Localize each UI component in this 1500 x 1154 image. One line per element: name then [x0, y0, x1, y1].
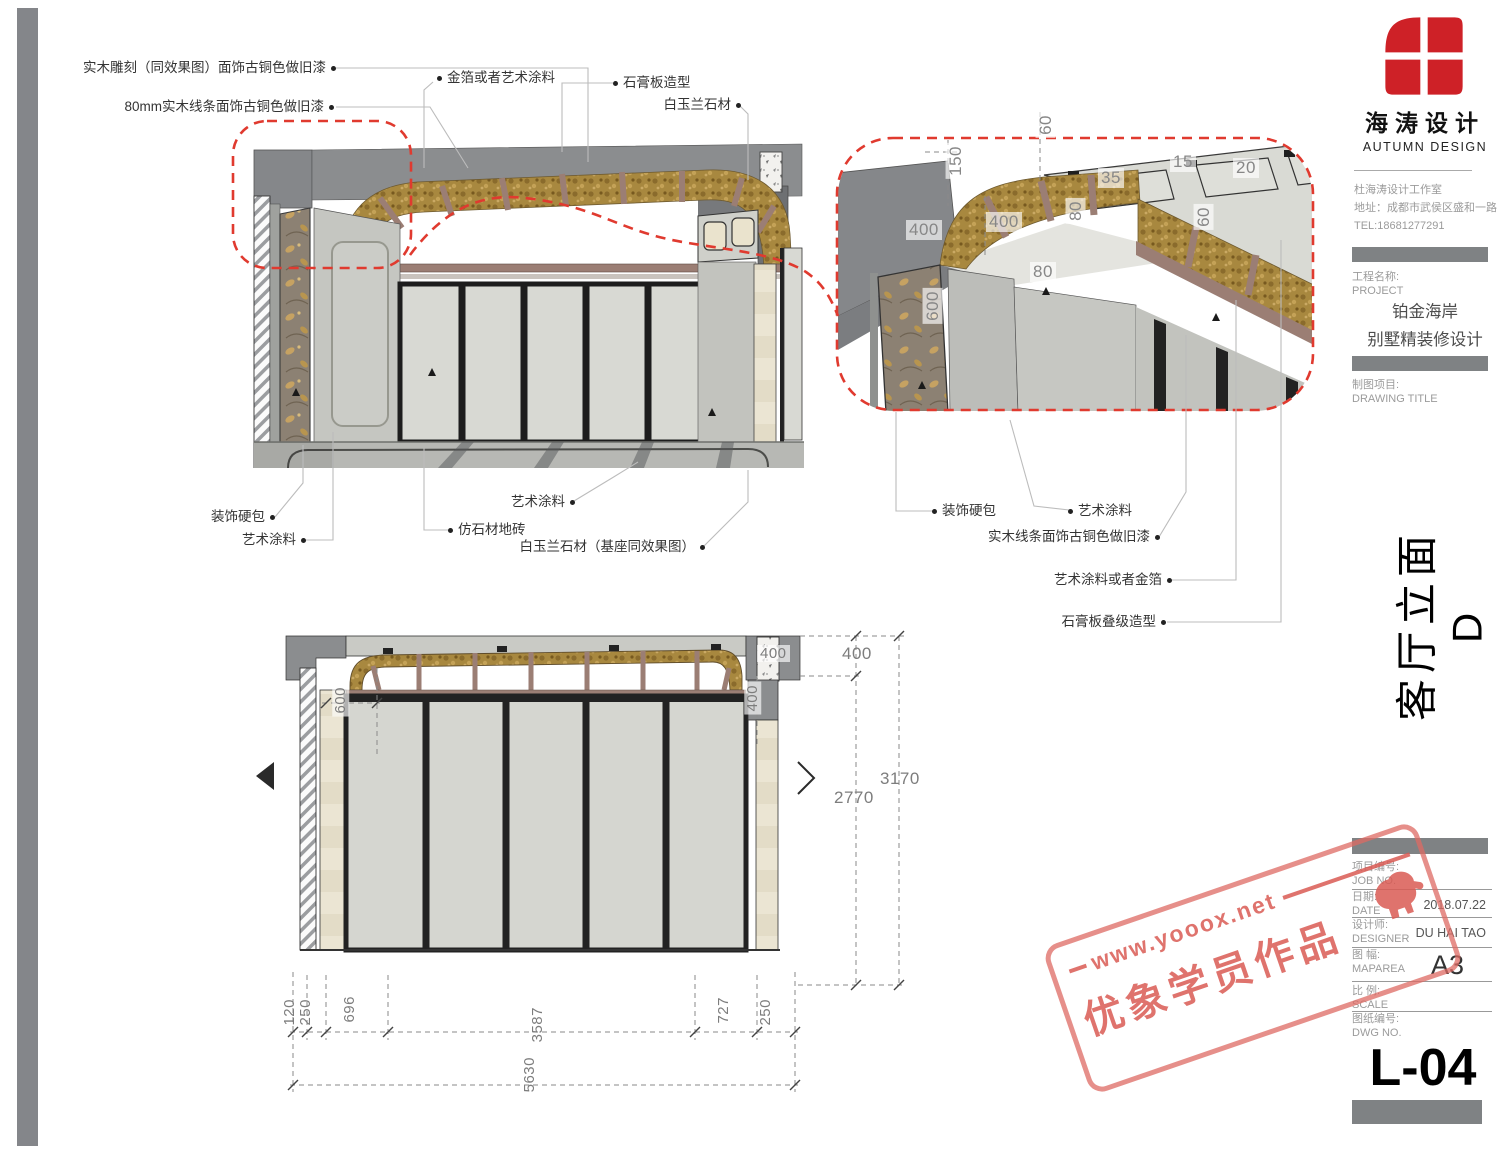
dim-60-right: 60	[1194, 204, 1214, 230]
callout-detail-wood-trim: 实木线条面饰古铜色做旧漆	[984, 529, 1160, 545]
main-perspective-render	[252, 138, 804, 468]
dim-600-detail: 600	[923, 288, 943, 324]
callout-text: 白玉兰石材（基座同效果图）	[520, 539, 696, 555]
dim-727: 727	[715, 994, 732, 1027]
leader-dot	[270, 515, 275, 520]
callout-text: 白玉兰石材	[664, 97, 732, 113]
leader-dot	[301, 538, 306, 543]
callout-gypsum-shape: 石膏板造型	[613, 75, 691, 91]
elevation-right-wall	[748, 680, 778, 950]
gold-floral-panel	[280, 208, 310, 468]
detail-bubble-render	[836, 137, 1314, 413]
dim-5630: 5630	[521, 1054, 538, 1095]
dim-20: 20	[1233, 158, 1259, 178]
callout-magnolia-base: 白玉兰石材（基座同效果图）	[475, 539, 705, 555]
left-edge-bar	[17, 8, 38, 1146]
callout-text: 实木雕刻（同效果图）面饰古铜色做旧漆	[83, 60, 326, 76]
leader-dot	[448, 528, 453, 533]
leader-dot	[331, 66, 336, 71]
dim-400-v: 400	[839, 644, 875, 664]
callout-text: 艺术涂料	[511, 494, 565, 510]
callout-text: 艺术涂料或者金箔	[1054, 572, 1162, 588]
leader-dot	[437, 76, 442, 81]
dim-400-mid: 400	[986, 212, 1022, 232]
leader-dot	[736, 103, 741, 108]
callout-wood-trim-80mm: 80mm实木线条面饰古铜色做旧漆	[84, 99, 334, 115]
drawing-title-vertical: 客厅立面D	[1393, 518, 1443, 733]
leader-dot	[1155, 535, 1160, 540]
dim-15: 15	[1170, 152, 1196, 172]
studio-name: 杜海涛设计工作室	[1354, 181, 1497, 199]
dim-35: 35	[1098, 168, 1124, 188]
field-dwg-no: 图纸编号: DWG NO.	[1352, 1012, 1492, 1040]
stone-column	[754, 264, 776, 442]
callout-magnolia-stone: 白玉兰石材	[645, 97, 741, 113]
callout-faux-stone-floor: 仿石材地砖	[448, 522, 526, 538]
callout-gold-foil: 金箔或者艺术涂料	[437, 70, 555, 86]
studio-info: 杜海涛设计工作室 地址：成都市武侯区盛和一路 TEL:18681277291	[1354, 181, 1497, 235]
callout-detail-stepped-gypsum: 石膏板叠级造型	[1062, 614, 1166, 630]
leader-dot	[1068, 509, 1073, 514]
dim-3587: 3587	[529, 1004, 546, 1045]
dim-600-left-rot: 600	[332, 684, 349, 717]
callout-text: 金箔或者艺术涂料	[447, 70, 555, 86]
company-logo-icon	[1378, 10, 1470, 102]
callout-art-coating-left: 艺术涂料	[230, 532, 306, 548]
brand-name-en: AUTUMN DESIGN	[1352, 140, 1498, 154]
brand-name: 海涛设计	[1352, 104, 1498, 138]
studio-tel: TEL:18681277291	[1354, 217, 1497, 235]
callout-text: 80mm实木线条面饰古铜色做旧漆	[124, 99, 324, 115]
drawing-sheet: 实木雕刻（同效果图）面饰古铜色做旧漆 80mm实木线条面饰古铜色做旧漆 金箔或者…	[0, 0, 1500, 1154]
dim-400-left: 400	[906, 220, 942, 240]
glass-panels	[400, 284, 712, 442]
leader-dot	[1167, 578, 1172, 583]
callout-detail-art-coating: 艺术涂料	[1068, 503, 1132, 519]
callout-text: 仿石材地砖	[458, 522, 526, 538]
left-wall	[254, 196, 400, 468]
leader-dot	[1161, 620, 1166, 625]
dim-120: 120	[281, 996, 298, 1029]
studio-address: 地址：成都市武侯区盛和一路	[1354, 199, 1497, 217]
callout-text: 石膏板叠级造型	[1062, 614, 1157, 630]
leader-dot	[329, 105, 334, 110]
project-name: 铂金海岸 别墅精装修设计	[1352, 298, 1498, 354]
drawing-title-label: 制图项目: DRAWING TITLE	[1352, 378, 1438, 407]
floor	[254, 442, 804, 468]
callout-text: 艺术涂料	[1078, 503, 1132, 519]
dim-2770: 2770	[831, 788, 877, 808]
dim-250-right: 250	[757, 996, 774, 1029]
divider	[1354, 170, 1472, 171]
dim-80-upper: 80	[1066, 198, 1086, 224]
callout-art-coating-mid: 艺术涂料	[503, 494, 575, 510]
dim-80-lower: 80	[1030, 262, 1056, 282]
stamp-dash	[1069, 963, 1087, 973]
leader-dot	[613, 81, 618, 86]
dim-3170: 3170	[877, 769, 923, 789]
divider-bar	[1352, 356, 1488, 371]
elevation-glass-panels	[346, 696, 746, 950]
leader-dot	[570, 500, 575, 505]
divider-bar	[1352, 247, 1488, 262]
callout-text: 艺术涂料	[242, 532, 296, 548]
callout-soft-panel: 装饰硬包	[203, 509, 275, 525]
callout-text: 石膏板造型	[623, 75, 691, 91]
project-label: 工程名称: PROJECT	[1352, 270, 1403, 299]
leader-dot	[932, 509, 937, 514]
callout-text: 实木线条面饰古铜色做旧漆	[988, 529, 1150, 545]
dim-150: 150	[946, 143, 966, 179]
callout-text: 装饰硬包	[211, 509, 265, 525]
dim-400-soffit: 400	[757, 645, 790, 662]
callout-text: 装饰硬包	[942, 503, 996, 519]
sheet-number: L-04	[1352, 1038, 1494, 1098]
elevation-drawing	[283, 628, 803, 968]
leader-dot	[700, 545, 705, 550]
dim-696: 696	[341, 993, 358, 1026]
callout-detail-gold-foil: 艺术涂料或者金箔	[1050, 572, 1172, 588]
dim-250-left: 250	[297, 996, 314, 1029]
callout-wood-carving: 实木雕刻（同效果图）面饰古铜色做旧漆	[90, 60, 336, 76]
divider-bar	[1352, 1100, 1482, 1124]
callout-detail-soft-panel: 装饰硬包	[932, 503, 996, 519]
dim-60-top: 60	[1036, 112, 1056, 138]
dim-400-right-rot: 400	[744, 682, 761, 715]
